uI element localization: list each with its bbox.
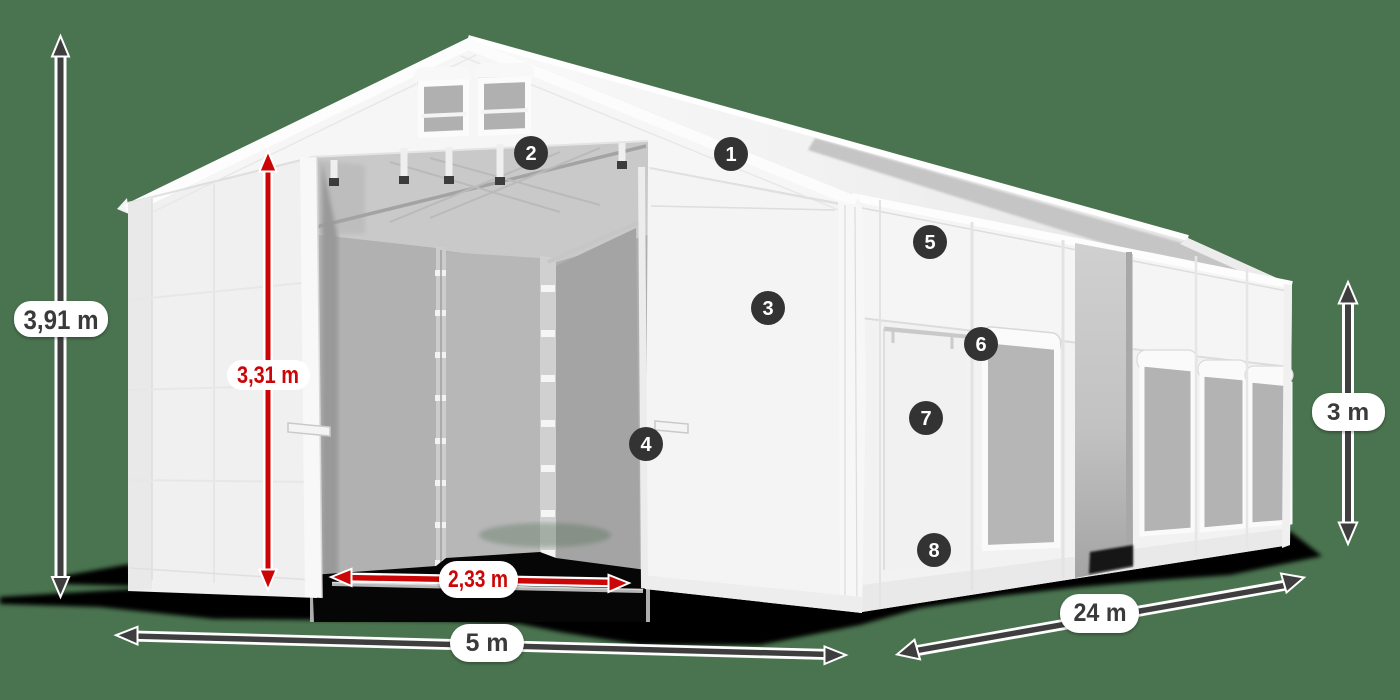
svg-text:8: 8 xyxy=(928,540,939,562)
svg-text:2: 2 xyxy=(525,143,536,165)
svg-text:3 m: 3 m xyxy=(1327,399,1369,426)
svg-text:3,91 m: 3,91 m xyxy=(24,305,99,335)
svg-text:5 m: 5 m xyxy=(465,629,508,657)
svg-text:3: 3 xyxy=(762,298,773,320)
svg-text:24 m: 24 m xyxy=(1074,599,1127,627)
svg-text:2,33 m: 2,33 m xyxy=(448,566,508,593)
svg-text:7: 7 xyxy=(920,408,931,430)
svg-text:4: 4 xyxy=(640,434,652,456)
svg-text:1: 1 xyxy=(725,144,736,166)
svg-text:6: 6 xyxy=(975,334,986,356)
svg-text:3,31 m: 3,31 m xyxy=(237,362,299,389)
svg-text:5: 5 xyxy=(924,232,935,254)
